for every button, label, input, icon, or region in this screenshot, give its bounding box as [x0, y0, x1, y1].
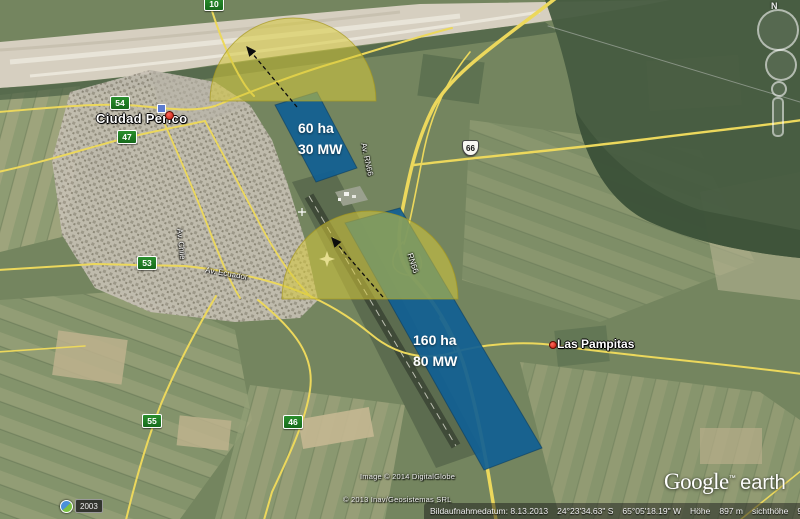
route-shield-66-label: 66 [466, 144, 475, 153]
route-badge-46: 46 [283, 415, 303, 429]
site-north-area: 60 ha [298, 118, 342, 139]
route-badge-10-label: 10 [209, 0, 218, 9]
route-badge-10: 10 [204, 0, 224, 11]
copyright-imagery: Image © 2014 DigitalGlobe [360, 472, 455, 481]
zoom-in-button[interactable] [771, 81, 787, 97]
route-badge-46-label: 46 [288, 417, 297, 427]
time-slider-icon[interactable] [60, 500, 73, 513]
status-latitude: 24°23'34.63" S [557, 506, 613, 516]
status-elevation-label: Höhe [690, 506, 710, 516]
map-viewport[interactable]: Ciudad Perico Las Pampitas 10 54 47 53 5… [0, 0, 800, 519]
town-label: Las Pampitas [557, 337, 634, 351]
site-north-label: 60 ha 30 MW [298, 118, 342, 160]
route-badge-55: 55 [142, 414, 162, 428]
site-south-power: 80 MW [413, 351, 457, 372]
route-badge-54: 54 [110, 96, 130, 110]
look-joystick[interactable] [757, 9, 799, 51]
status-bar: Bildaufnahmedatum: 8.13.2013 24°23'34.63… [424, 503, 800, 519]
move-joystick[interactable] [765, 49, 797, 81]
satellite-imagery [0, 0, 800, 519]
site-south-area: 160 ha [413, 330, 457, 351]
route-badge-47-label: 47 [122, 132, 131, 142]
site-north-power: 30 MW [298, 139, 342, 160]
route-badge-54-label: 54 [115, 98, 124, 108]
status-elevation-value: 897 m [719, 506, 743, 516]
zoom-slider[interactable] [772, 97, 784, 137]
route-badge-53-label: 53 [142, 258, 151, 268]
status-imagery-date: Bildaufnahmedatum: 8.13.2013 [430, 506, 548, 516]
time-slider-year: 2003 [80, 502, 98, 511]
google-earth-logo: Google™ earth [664, 469, 786, 495]
site-south-label: 160 ha 80 MW [413, 330, 457, 372]
logo-tm: ™ [729, 475, 736, 482]
status-eye-alt-label: sichthöhe [752, 506, 788, 516]
logo-earth-text: earth [740, 472, 786, 494]
status-longitude: 65°05'18.19" W [622, 506, 681, 516]
city-placemark-icon[interactable] [165, 111, 174, 120]
time-slider-chip[interactable]: 2003 [75, 499, 103, 513]
town-placemark-icon[interactable] [549, 341, 557, 349]
poi-icon [157, 104, 166, 113]
route-badge-53: 53 [137, 256, 157, 270]
logo-google-text: Google [664, 469, 729, 494]
route-badge-55-label: 55 [147, 416, 156, 426]
route-badge-47: 47 [117, 130, 137, 144]
